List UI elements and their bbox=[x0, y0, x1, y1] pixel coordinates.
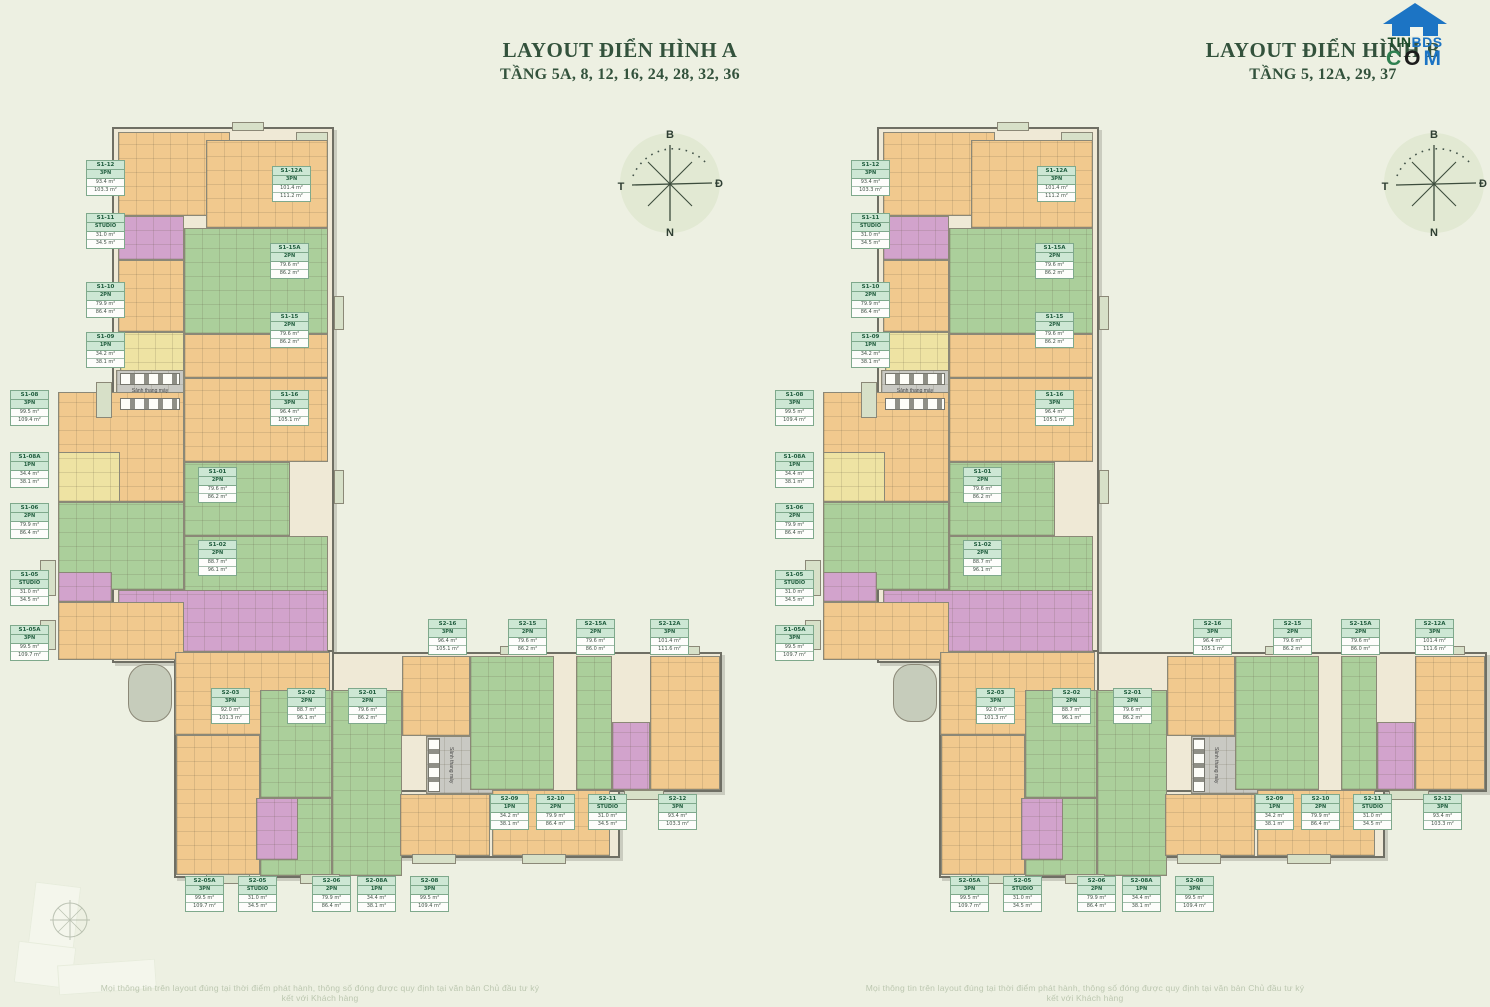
unit-block bbox=[118, 260, 184, 332]
unit-label-S1-09: S1-091PN34.2 m²38.1 m² bbox=[851, 332, 890, 368]
unit-type: STUDIO bbox=[1004, 886, 1041, 895]
unit-type: 3PN bbox=[11, 400, 48, 409]
unit-area-net: 93.4 m² bbox=[1424, 813, 1461, 822]
unit-type: 2PN bbox=[87, 292, 124, 301]
unit-area-net: 79.6 m² bbox=[1036, 262, 1073, 271]
unit-label-S2-10: S2-102PN79.9 m²86.4 m² bbox=[536, 794, 575, 830]
unit-area-gross: 111.6 m² bbox=[1416, 646, 1453, 654]
unit-area-net: 34.4 m² bbox=[358, 895, 395, 904]
unit-label-S1-02: S1-022PN88.7 m²96.1 m² bbox=[963, 540, 1002, 576]
unit-label-S1-01: S1-012PN79.6 m²86.2 m² bbox=[198, 467, 237, 503]
unit-label-S1-16: S1-163PN96.4 m²105.1 m² bbox=[1035, 390, 1074, 426]
compass-east-label: Đ bbox=[715, 178, 723, 190]
unit-code: S1-12 bbox=[852, 161, 889, 170]
unit-code: S2-03 bbox=[977, 689, 1014, 698]
unit-type: 3PN bbox=[87, 170, 124, 179]
unit-area-net: 88.7 m² bbox=[1053, 707, 1090, 716]
unit-type: 2PN bbox=[271, 322, 308, 331]
unit-area-net: 79.6 m² bbox=[1036, 331, 1073, 340]
unit-area-net: 101.4 m² bbox=[1416, 638, 1453, 647]
unit-code: S2-10 bbox=[1302, 795, 1339, 804]
unit-area-gross: 96.1 m² bbox=[964, 567, 1001, 575]
unit-code: S1-15 bbox=[1036, 313, 1073, 322]
stair-bump bbox=[128, 664, 172, 722]
unit-label-S1-05: S1-05STUDIO31.0 m²34.5 m² bbox=[10, 570, 49, 606]
unit-type: 2PN bbox=[509, 629, 546, 638]
unit-code: S2-15 bbox=[1274, 620, 1311, 629]
unit-label-S1-10: S1-102PN79.9 m²86.4 m² bbox=[851, 282, 890, 318]
balcony bbox=[1099, 470, 1109, 504]
unit-code: S2-15 bbox=[509, 620, 546, 629]
unit-area-gross: 34.5 m² bbox=[1004, 903, 1041, 911]
balcony bbox=[96, 382, 112, 418]
unit-area-gross: 86.2 m² bbox=[1036, 339, 1073, 347]
unit-area-net: 34.4 m² bbox=[11, 471, 48, 480]
unit-block bbox=[1415, 656, 1485, 790]
unit-code: S1-12 bbox=[87, 161, 124, 170]
unit-label-S2-05: S2-05STUDIO31.0 m²34.5 m² bbox=[238, 876, 277, 912]
unit-area-gross: 96.1 m² bbox=[288, 715, 325, 723]
compass-west-label: T bbox=[1382, 181, 1389, 193]
unit-area-net: 79.6 m² bbox=[964, 486, 1001, 495]
balcony bbox=[1287, 854, 1331, 864]
unit-code: S1-11 bbox=[87, 214, 124, 223]
elevator-bank bbox=[428, 738, 440, 792]
unit-area-net: 31.0 m² bbox=[1354, 813, 1391, 822]
unit-block bbox=[941, 735, 1025, 875]
unit-area-gross: 86.0 m² bbox=[577, 646, 614, 654]
unit-block bbox=[883, 260, 949, 332]
unit-block bbox=[1341, 656, 1377, 790]
unit-code: S1-15A bbox=[271, 244, 308, 253]
unit-type: 3PN bbox=[951, 886, 988, 895]
unit-area-gross: 38.1 m² bbox=[1256, 821, 1293, 829]
unit-area-net: 99.5 m² bbox=[776, 409, 813, 418]
unit-area-net: 101.4 m² bbox=[651, 638, 688, 647]
unit-area-net: 79.6 m² bbox=[199, 486, 236, 495]
unit-area-net: 79.6 m² bbox=[349, 707, 386, 716]
unit-label-S1-05A: S1-05A3PN99.5 m²109.7 m² bbox=[775, 625, 814, 661]
unit-block bbox=[1021, 798, 1063, 860]
unit-area-gross: 86.0 m² bbox=[1342, 646, 1379, 654]
unit-code: S1-09 bbox=[87, 333, 124, 342]
unit-label-S2-01: S2-012PN79.6 m²86.2 m² bbox=[1113, 688, 1152, 724]
unit-type: 3PN bbox=[273, 176, 310, 185]
unit-type: 3PN bbox=[11, 635, 48, 644]
unit-area-net: 79.6 m² bbox=[1114, 707, 1151, 716]
unit-area-gross: 86.4 m² bbox=[776, 530, 813, 538]
balcony bbox=[1099, 296, 1109, 330]
unit-code: S1-16 bbox=[271, 391, 308, 400]
unit-label-S1-05: S1-05STUDIO31.0 m²34.5 m² bbox=[775, 570, 814, 606]
balcony bbox=[997, 122, 1029, 131]
elevator-bank bbox=[120, 398, 180, 410]
unit-label-S1-08: S1-083PN99.5 m²109.4 m² bbox=[775, 390, 814, 426]
unit-label-S2-12: S2-123PN93.4 m²103.3 m² bbox=[658, 794, 697, 830]
unit-area-net: 31.0 m² bbox=[87, 232, 124, 241]
unit-area-gross: 86.2 m² bbox=[199, 494, 236, 502]
unit-area-gross: 86.2 m² bbox=[1114, 715, 1151, 723]
unit-block bbox=[402, 656, 470, 736]
unit-area-net: 79.9 m² bbox=[776, 522, 813, 531]
unit-area-gross: 34.5 m² bbox=[589, 821, 626, 829]
unit-block bbox=[823, 602, 949, 660]
unit-type: 2PN bbox=[1114, 698, 1151, 707]
unit-type: 2PN bbox=[349, 698, 386, 707]
unit-label-S1-12: S1-123PN93.4 m²103.3 m² bbox=[851, 160, 890, 196]
unit-label-S2-12A: S2-12A3PN101.4 m²111.6 m² bbox=[1415, 619, 1454, 655]
unit-label-S1-15: S1-152PN79.6 m²86.2 m² bbox=[1035, 312, 1074, 348]
unit-code: S1-08A bbox=[776, 453, 813, 462]
unit-type: STUDIO bbox=[11, 580, 48, 589]
unit-code: S2-09 bbox=[491, 795, 528, 804]
unit-label-S1-02: S1-022PN88.7 m²96.1 m² bbox=[198, 540, 237, 576]
unit-code: S1-12A bbox=[273, 167, 310, 176]
unit-code: S2-05 bbox=[1004, 877, 1041, 886]
unit-type: 3PN bbox=[212, 698, 249, 707]
unit-type: 3PN bbox=[1038, 176, 1075, 185]
unit-area-gross: 34.5 m² bbox=[776, 597, 813, 605]
unit-label-S2-02: S2-022PN88.7 m²96.1 m² bbox=[1052, 688, 1091, 724]
unit-code: S2-16 bbox=[1194, 620, 1231, 629]
unit-area-gross: 109.4 m² bbox=[411, 903, 448, 911]
unit-code: S2-12A bbox=[651, 620, 688, 629]
unit-type: 3PN bbox=[1194, 629, 1231, 638]
unit-area-gross: 38.1 m² bbox=[87, 359, 124, 367]
unit-area-gross: 103.3 m² bbox=[87, 187, 124, 195]
unit-area-net: 99.5 m² bbox=[411, 895, 448, 904]
unit-label-S2-11: S2-11STUDIO31.0 m²34.5 m² bbox=[588, 794, 627, 830]
unit-area-gross: 111.6 m² bbox=[651, 646, 688, 654]
unit-area-net: 31.0 m² bbox=[1004, 895, 1041, 904]
unit-area-net: 96.4 m² bbox=[429, 638, 466, 647]
unit-label-S2-15A: S2-15A2PN79.6 m²86.0 m² bbox=[576, 619, 615, 655]
unit-label-S2-10: S2-102PN79.9 m²86.4 m² bbox=[1301, 794, 1340, 830]
unit-type: 2PN bbox=[1053, 698, 1090, 707]
unit-area-gross: 38.1 m² bbox=[11, 479, 48, 487]
unit-area-gross: 105.1 m² bbox=[271, 417, 308, 425]
unit-area-gross: 86.4 m² bbox=[852, 309, 889, 317]
unit-area-net: 96.4 m² bbox=[271, 409, 308, 418]
unit-block bbox=[1235, 656, 1319, 790]
unit-area-net: 31.0 m² bbox=[239, 895, 276, 904]
unit-type: 2PN bbox=[1274, 629, 1311, 638]
unit-type: 1PN bbox=[11, 462, 48, 471]
unit-type: STUDIO bbox=[239, 886, 276, 895]
unit-area-gross: 38.1 m² bbox=[852, 359, 889, 367]
unit-type: 2PN bbox=[313, 886, 350, 895]
unit-type: 2PN bbox=[1036, 253, 1073, 262]
unit-area-gross: 86.4 m² bbox=[537, 821, 574, 829]
unit-label-S1-06: S1-062PN79.9 m²86.4 m² bbox=[775, 503, 814, 539]
unit-area-net: 79.9 m² bbox=[1302, 813, 1339, 822]
unit-area-gross: 86.4 m² bbox=[11, 530, 48, 538]
unit-area-net: 34.4 m² bbox=[776, 471, 813, 480]
unit-type: 2PN bbox=[288, 698, 325, 707]
unit-area-gross: 34.5 m² bbox=[852, 240, 889, 248]
unit-area-gross: 109.7 m² bbox=[11, 652, 48, 660]
unit-area-net: 99.5 m² bbox=[186, 895, 223, 904]
lobby-label: Sảnh thang máy bbox=[448, 738, 454, 792]
unit-label-S2-16: S2-163PN96.4 m²105.1 m² bbox=[1193, 619, 1232, 655]
unit-area-gross: 103.3 m² bbox=[1424, 821, 1461, 829]
compass-west-label: T bbox=[618, 181, 625, 193]
unit-area-gross: 86.4 m² bbox=[1302, 821, 1339, 829]
unit-code: S2-16 bbox=[429, 620, 466, 629]
unit-type: 1PN bbox=[1256, 804, 1293, 813]
unit-code: S2-05A bbox=[186, 877, 223, 886]
unit-label-S1-15A: S1-15A2PN79.6 m²86.2 m² bbox=[270, 243, 309, 279]
lobby-label: Sảnh thang máy bbox=[877, 388, 953, 394]
unit-code: S1-08 bbox=[11, 391, 48, 400]
unit-label-S1-08A: S1-08A1PN34.4 m²38.1 m² bbox=[775, 452, 814, 488]
unit-label-S1-08: S1-083PN99.5 m²109.4 m² bbox=[10, 390, 49, 426]
unit-block bbox=[612, 722, 650, 790]
unit-block bbox=[1165, 794, 1255, 856]
unit-area-net: 31.0 m² bbox=[776, 589, 813, 598]
unit-area-gross: 105.1 m² bbox=[1036, 417, 1073, 425]
unit-code: S1-05A bbox=[776, 626, 813, 635]
unit-label-S2-08: S2-083PN99.5 m²109.4 m² bbox=[1175, 876, 1214, 912]
unit-code: S1-02 bbox=[199, 541, 236, 550]
unit-code: S1-15A bbox=[1036, 244, 1073, 253]
unit-code: S1-11 bbox=[852, 214, 889, 223]
balcony bbox=[412, 854, 456, 864]
unit-area-gross: 103.3 m² bbox=[852, 187, 889, 195]
unit-area-net: 34.2 m² bbox=[852, 351, 889, 360]
balcony bbox=[861, 382, 877, 418]
unit-area-net: 99.5 m² bbox=[951, 895, 988, 904]
compass-south-label: N bbox=[1430, 227, 1438, 239]
unit-area-gross: 109.7 m² bbox=[776, 652, 813, 660]
unit-label-S2-12: S2-123PN93.4 m²103.3 m² bbox=[1423, 794, 1462, 830]
unit-type: 3PN bbox=[651, 629, 688, 638]
unit-area-net: 99.5 m² bbox=[11, 409, 48, 418]
unit-type: 3PN bbox=[977, 698, 1014, 707]
unit-block bbox=[256, 798, 298, 860]
unit-type: 3PN bbox=[1416, 629, 1453, 638]
unit-area-net: 31.0 m² bbox=[11, 589, 48, 598]
unit-type: 3PN bbox=[186, 886, 223, 895]
unit-label-S2-05A: S2-05A3PN99.5 m²109.7 m² bbox=[950, 876, 989, 912]
unit-label-S2-02: S2-022PN88.7 m²96.1 m² bbox=[287, 688, 326, 724]
unit-label-S2-09: S2-091PN34.2 m²38.1 m² bbox=[490, 794, 529, 830]
disclaimer-right: Mọi thông tin trên layout đúng tại thời … bbox=[865, 983, 1305, 1003]
unit-area-gross: 86.4 m² bbox=[1078, 903, 1115, 911]
unit-area-gross: 34.5 m² bbox=[87, 240, 124, 248]
unit-label-S1-11: S1-11STUDIO31.0 m²34.5 m² bbox=[851, 213, 890, 249]
unit-area-gross: 109.7 m² bbox=[951, 903, 988, 911]
unit-type: 3PN bbox=[852, 170, 889, 179]
unit-area-gross: 86.2 m² bbox=[509, 646, 546, 654]
unit-area-gross: 103.3 m² bbox=[659, 821, 696, 829]
unit-label-S2-16: S2-163PN96.4 m²105.1 m² bbox=[428, 619, 467, 655]
unit-code: S1-02 bbox=[964, 541, 1001, 550]
unit-type: 2PN bbox=[11, 513, 48, 522]
unit-area-gross: 38.1 m² bbox=[358, 903, 395, 911]
unit-code: S1-08 bbox=[776, 391, 813, 400]
unit-block bbox=[650, 656, 720, 790]
unit-block bbox=[58, 602, 184, 660]
disclaimer-left: Mọi thông tin trên layout đúng tại thời … bbox=[100, 983, 540, 1003]
unit-code: S2-09 bbox=[1256, 795, 1293, 804]
unit-code: S1-01 bbox=[964, 468, 1001, 477]
unit-type: 2PN bbox=[537, 804, 574, 813]
tinbds-logo: TINBDS COM bbox=[1368, 2, 1462, 69]
unit-area-gross: 96.1 m² bbox=[1053, 715, 1090, 723]
unit-type: 1PN bbox=[852, 342, 889, 351]
unit-area-net: 31.0 m² bbox=[852, 232, 889, 241]
unit-type: 3PN bbox=[776, 635, 813, 644]
unit-area-gross: 86.2 m² bbox=[1274, 646, 1311, 654]
unit-code: S2-11 bbox=[589, 795, 626, 804]
unit-code: S2-01 bbox=[349, 689, 386, 698]
unit-area-net: 88.7 m² bbox=[964, 559, 1001, 568]
unit-code: S2-08 bbox=[1176, 877, 1213, 886]
compass-rose-b: B Đ N T bbox=[1376, 124, 1490, 240]
elevator-bank bbox=[1193, 738, 1205, 792]
unit-area-net: 79.9 m² bbox=[852, 301, 889, 310]
compass-north-label: B bbox=[666, 129, 674, 141]
unit-code: S1-05A bbox=[11, 626, 48, 635]
logo-com: COM bbox=[1368, 48, 1462, 69]
unit-area-net: 88.7 m² bbox=[288, 707, 325, 716]
unit-code: S2-03 bbox=[212, 689, 249, 698]
unit-code: S2-05 bbox=[239, 877, 276, 886]
unit-area-net: 79.9 m² bbox=[87, 301, 124, 310]
unit-type: 3PN bbox=[776, 400, 813, 409]
unit-type: 3PN bbox=[429, 629, 466, 638]
unit-code: S2-10 bbox=[537, 795, 574, 804]
balcony bbox=[1061, 132, 1093, 141]
unit-type: STUDIO bbox=[852, 223, 889, 232]
unit-area-net: 79.6 m² bbox=[1342, 638, 1379, 647]
unit-label-S1-05A: S1-05A3PN99.5 m²109.7 m² bbox=[10, 625, 49, 661]
unit-area-net: 96.4 m² bbox=[1194, 638, 1231, 647]
unit-area-gross: 101.3 m² bbox=[212, 715, 249, 723]
unit-area-gross: 109.4 m² bbox=[11, 417, 48, 425]
unit-area-gross: 34.5 m² bbox=[1354, 821, 1391, 829]
unit-code: S1-08A bbox=[11, 453, 48, 462]
unit-label-S1-11: S1-11STUDIO31.0 m²34.5 m² bbox=[86, 213, 125, 249]
unit-area-net: 88.7 m² bbox=[199, 559, 236, 568]
unit-label-S1-16: S1-163PN96.4 m²105.1 m² bbox=[270, 390, 309, 426]
lobby-label: Sảnh thang máy bbox=[112, 388, 188, 394]
unit-code: S1-06 bbox=[11, 504, 48, 513]
balcony bbox=[232, 122, 264, 131]
unit-label-S2-15: S2-152PN79.6 m²86.2 m² bbox=[508, 619, 547, 655]
unit-type: 1PN bbox=[87, 342, 124, 351]
unit-type: 3PN bbox=[271, 400, 308, 409]
balcony bbox=[296, 132, 328, 141]
unit-label-S1-06: S1-062PN79.9 m²86.4 m² bbox=[10, 503, 49, 539]
unit-code: S1-10 bbox=[852, 283, 889, 292]
unit-area-net: 96.4 m² bbox=[1036, 409, 1073, 418]
unit-area-net: 79.9 m² bbox=[537, 813, 574, 822]
unit-type: 3PN bbox=[411, 886, 448, 895]
unit-label-S1-15A: S1-15A2PN79.6 m²86.2 m² bbox=[1035, 243, 1074, 279]
unit-area-gross: 86.4 m² bbox=[313, 903, 350, 911]
unit-label-S2-12A: S2-12A3PN101.4 m²111.6 m² bbox=[650, 619, 689, 655]
lobby-label: Sảnh thang máy bbox=[1213, 738, 1219, 792]
balcony bbox=[1177, 854, 1221, 864]
unit-area-gross: 109.4 m² bbox=[776, 417, 813, 425]
unit-type: 1PN bbox=[358, 886, 395, 895]
unit-code: S2-11 bbox=[1354, 795, 1391, 804]
unit-area-gross: 86.2 m² bbox=[349, 715, 386, 723]
unit-code: S1-01 bbox=[199, 468, 236, 477]
unit-label-S1-10: S1-102PN79.9 m²86.4 m² bbox=[86, 282, 125, 318]
unit-type: 3PN bbox=[1036, 400, 1073, 409]
unit-code: S2-15A bbox=[577, 620, 614, 629]
unit-label-S2-15: S2-152PN79.6 m²86.2 m² bbox=[1273, 619, 1312, 655]
unit-code: S2-02 bbox=[1053, 689, 1090, 698]
unit-label-S2-15A: S2-15A2PN79.6 m²86.0 m² bbox=[1341, 619, 1380, 655]
unit-label-S1-12A: S1-12A3PN101.4 m²111.2 m² bbox=[272, 166, 311, 202]
unit-code: S1-15 bbox=[271, 313, 308, 322]
unit-code: S2-05A bbox=[951, 877, 988, 886]
unit-area-gross: 86.2 m² bbox=[964, 494, 1001, 502]
unit-area-net: 79.6 m² bbox=[271, 262, 308, 271]
unit-type: 1PN bbox=[1123, 886, 1160, 895]
unit-type: 2PN bbox=[199, 550, 236, 559]
unit-area-gross: 86.2 m² bbox=[1036, 270, 1073, 278]
unit-area-net: 34.2 m² bbox=[491, 813, 528, 822]
unit-block bbox=[1377, 722, 1415, 790]
unit-area-gross: 86.4 m² bbox=[87, 309, 124, 317]
unit-area-gross: 109.7 m² bbox=[186, 903, 223, 911]
unit-code: S2-02 bbox=[288, 689, 325, 698]
elevator-bank bbox=[885, 373, 945, 385]
unit-block bbox=[58, 572, 112, 602]
unit-type: 2PN bbox=[1342, 629, 1379, 638]
unit-type: 3PN bbox=[659, 804, 696, 813]
unit-code: S2-12A bbox=[1416, 620, 1453, 629]
unit-code: S2-08A bbox=[1123, 877, 1160, 886]
unit-area-gross: 111.2 m² bbox=[1038, 193, 1075, 201]
unit-block bbox=[576, 656, 612, 790]
unit-area-net: 79.6 m² bbox=[1274, 638, 1311, 647]
unit-area-net: 92.0 m² bbox=[977, 707, 1014, 716]
unit-code: S1-12A bbox=[1038, 167, 1075, 176]
unit-code: S2-15A bbox=[1342, 620, 1379, 629]
unit-area-net: 79.9 m² bbox=[1078, 895, 1115, 904]
unit-label-S2-03: S2-033PN92.0 m²101.3 m² bbox=[211, 688, 250, 724]
unit-type: 2PN bbox=[1078, 886, 1115, 895]
unit-label-S1-01: S1-012PN79.6 m²86.2 m² bbox=[963, 467, 1002, 503]
elevator-bank bbox=[885, 398, 945, 410]
unit-type: 2PN bbox=[577, 629, 614, 638]
unit-block bbox=[823, 572, 877, 602]
unit-block bbox=[400, 794, 490, 856]
unit-block bbox=[58, 452, 120, 502]
unit-area-net: 31.0 m² bbox=[589, 813, 626, 822]
unit-label-S2-05A: S2-05A3PN99.5 m²109.7 m² bbox=[185, 876, 224, 912]
unit-type: 2PN bbox=[1302, 804, 1339, 813]
unit-code: S1-16 bbox=[1036, 391, 1073, 400]
unit-area-net: 93.4 m² bbox=[659, 813, 696, 822]
unit-code: S2-06 bbox=[313, 877, 350, 886]
unit-area-net: 101.4 m² bbox=[1038, 185, 1075, 194]
unit-label-S1-09: S1-091PN34.2 m²38.1 m² bbox=[86, 332, 125, 368]
unit-block bbox=[1167, 656, 1235, 736]
unit-area-net: 101.4 m² bbox=[273, 185, 310, 194]
unit-code: S2-08A bbox=[358, 877, 395, 886]
unit-type: STUDIO bbox=[589, 804, 626, 813]
unit-area-gross: 86.2 m² bbox=[271, 339, 308, 347]
compass-south-label: N bbox=[666, 227, 674, 239]
unit-area-net: 99.5 m² bbox=[776, 644, 813, 653]
